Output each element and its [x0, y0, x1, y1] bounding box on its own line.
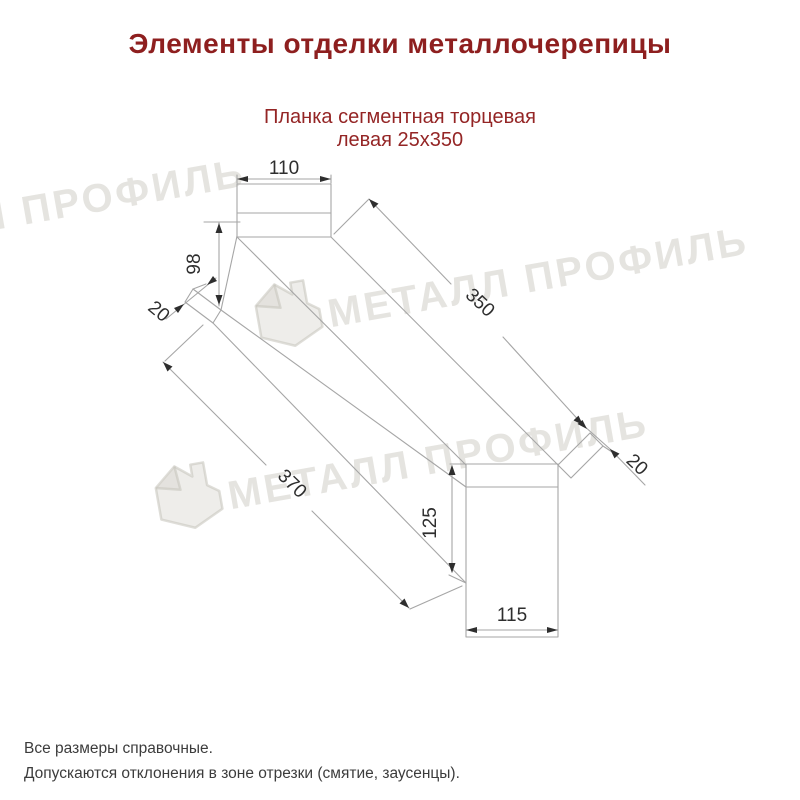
dim-top-width: 110 [237, 158, 331, 183]
dim-arrow [207, 276, 217, 285]
dim-bottom-width: 115 [466, 605, 558, 633]
dim-110-label: 110 [269, 158, 299, 179]
bend-edge [237, 237, 466, 465]
left-end-flap [185, 289, 221, 323]
dim-98-label: 98 [184, 253, 205, 274]
dim-arrow [216, 223, 223, 233]
mp-logo-icon [153, 460, 225, 534]
dim-125-label: 125 [420, 507, 441, 539]
dim-20-right-label: 20 [622, 450, 652, 480]
technical-drawing: МЕТАЛЛ ПРОФИЛЬ МЕТАЛЛ ПРОФИЛЬ МЕТАЛЛ ПРО… [0, 0, 800, 800]
dim-arrow [216, 295, 223, 305]
footer-notes: Все размеры справочные. Допускаются откл… [24, 736, 460, 786]
mp-watermark-text: МЕТАЛЛ ПРОФИЛЬ [225, 401, 652, 518]
left-end-edge [221, 236, 237, 310]
top-end-face [237, 184, 331, 237]
dim-arrow [320, 176, 331, 182]
dim-115-label: 115 [497, 605, 527, 626]
catalog-page: Элементы отделки металлочерепицы Планка … [0, 0, 800, 800]
watermark-group-upper: МЕТАЛЛ ПРОФИЛЬ [253, 202, 753, 351]
footer-note-2: Допускаются отклонения в зоне отрезки (с… [24, 761, 460, 786]
mp-watermark-text: МЕТАЛЛ ПРОФИЛЬ [0, 151, 249, 268]
footer-note-1: Все размеры справочные. [24, 736, 460, 761]
dim-20-left-label: 20 [144, 297, 174, 327]
watermark-partial-top-left: МЕТАЛЛ ПРОФИЛЬ [0, 151, 249, 268]
mp-watermark-text: МЕТАЛЛ ПРОФИЛЬ [325, 219, 752, 336]
watermark-group-lower: МЕТАЛЛ ПРОФИЛЬ [153, 384, 653, 533]
dim-arrow [466, 627, 477, 633]
dim-arrow [547, 627, 558, 633]
dim-left-height: 98 [184, 222, 240, 306]
dim-left-hem: 20 [144, 276, 217, 327]
